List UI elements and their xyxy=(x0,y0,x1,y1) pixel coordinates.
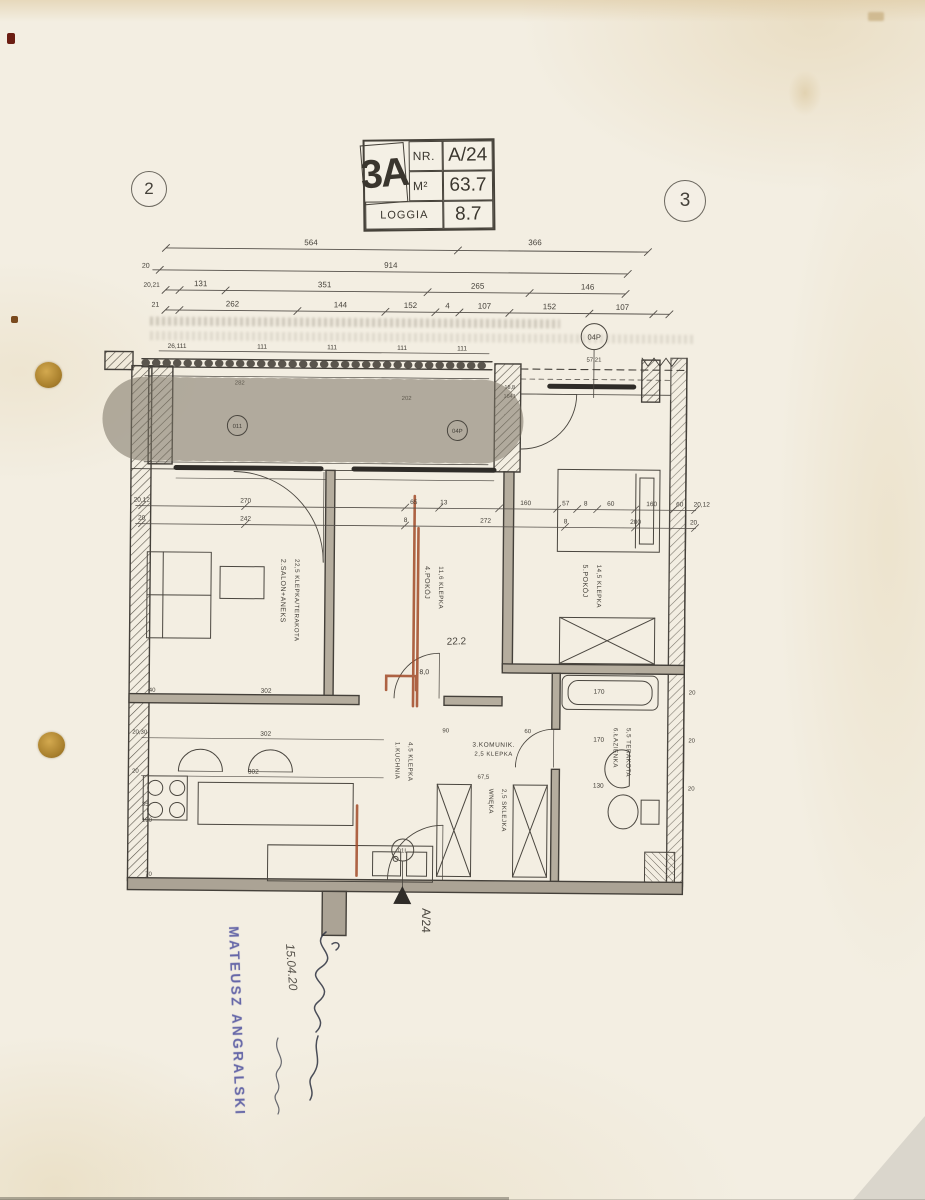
dim-label: 265 xyxy=(471,282,485,291)
axis-bubble-2: 2 xyxy=(131,171,167,207)
signature-strokes xyxy=(275,1038,281,1114)
plan-linework: 564 366 20 914 20,21 131 351 265 146 21 … xyxy=(100,234,713,938)
room-label-salon: 2.SALON+ANEKS xyxy=(279,559,287,623)
handwritten-signature: 15.04.20 xyxy=(248,918,368,1128)
dim-label: 20 xyxy=(690,519,698,526)
punch-hole xyxy=(38,732,65,758)
dim-label: 8 xyxy=(404,517,408,524)
paper-speck xyxy=(11,316,18,323)
dim-label: 170 xyxy=(593,737,604,744)
dim-label: 107 xyxy=(478,302,492,311)
dim-label: 190 xyxy=(142,818,153,824)
doors xyxy=(230,392,576,882)
dim-label: 67,5 xyxy=(477,775,489,781)
dim-label: 20,12 xyxy=(134,497,151,504)
dim-label: 272 xyxy=(480,518,491,525)
dim-label: 262 xyxy=(226,299,240,308)
room-label-pokoj5-area: 14,5 KLEPKA xyxy=(595,565,602,609)
area-value: 63.7 xyxy=(443,170,493,201)
dim-label: 107 xyxy=(616,303,630,312)
marker-door-2: 04P xyxy=(452,429,463,435)
dim-label: 13 xyxy=(440,499,448,506)
dim-label: 130 xyxy=(593,783,604,790)
loggia-value: 8.7 xyxy=(443,200,493,229)
room-label-pokoj5: 5.POKÓJ xyxy=(581,565,590,598)
axis-bubble-3: 3 xyxy=(664,180,706,222)
dim-label: 60 xyxy=(676,501,684,508)
dim-label: 4 xyxy=(445,301,450,310)
dim-label: 20,21 xyxy=(143,282,160,289)
dim-label: 35 xyxy=(142,802,149,808)
room-label-kuchnia: 1.KUCHNIA xyxy=(393,742,400,780)
nr-value: A/24 xyxy=(443,140,493,171)
dim-label: 57 xyxy=(562,500,570,507)
marker-04p: 04P xyxy=(587,333,600,342)
walls xyxy=(100,351,689,938)
dim-label: 90 xyxy=(442,728,449,734)
red-pencil-marks xyxy=(356,496,418,877)
unit-number: 3A xyxy=(360,142,409,205)
hand-dim-note: 8,0 xyxy=(419,669,429,676)
dim-label: 21 xyxy=(152,302,160,309)
dim-label: 152 xyxy=(404,301,418,310)
nr-label: NR. xyxy=(409,141,443,171)
dim-label: 40 xyxy=(149,688,156,694)
scanned-paper: 3A NR. A/24 M² 63.7 LOGGIA 8.7 2 3 xyxy=(0,0,925,1200)
dim-label: 270 xyxy=(240,498,251,505)
dim-label: 26,111 xyxy=(168,343,187,350)
page-corner-fold xyxy=(853,1116,925,1200)
dim-label: 20,30 xyxy=(132,730,148,736)
dim-label: 20 xyxy=(688,738,695,744)
dim-label: 152 xyxy=(543,302,557,311)
dim-label: 131 xyxy=(194,279,208,288)
paper-speck xyxy=(868,12,884,21)
signature-strokes xyxy=(310,932,339,1100)
dim-label: 170 xyxy=(594,689,605,696)
dim-label: 8 xyxy=(564,518,568,525)
title-block: 3A NR. A/24 M² 63.7 LOGGIA 8.7 xyxy=(363,138,496,231)
dim-label: 302 xyxy=(260,731,271,738)
dim-label: 20 xyxy=(132,769,139,775)
paper-speck xyxy=(7,33,15,44)
dim-label: 144 xyxy=(334,300,348,309)
dimension-labels-top: 564 366 20 914 20,21 131 351 265 146 21 … xyxy=(142,235,631,313)
room-label-pokoj4-area: 11,6 KLEPKA xyxy=(437,566,444,609)
dim-label: 302 xyxy=(261,688,272,695)
dim-label: 60 xyxy=(524,729,531,735)
dim-label: 70 xyxy=(145,872,152,878)
dim-label: 111 xyxy=(397,345,407,352)
dim-label: 242 xyxy=(240,516,251,523)
handwritten-date: 15.04.20 xyxy=(283,943,300,991)
paper-stain xyxy=(788,70,822,116)
marker-entrance-door: 01L xyxy=(398,848,409,854)
dim-label: 160 xyxy=(646,501,657,508)
room-label-komunik-area: 2,5 KLEPKA xyxy=(474,752,512,758)
dim-label: 20 xyxy=(142,263,150,270)
dim-label: 20 xyxy=(138,515,146,522)
area-label: M² xyxy=(409,171,443,201)
room-label-pokoj4: 4.POKÓJ xyxy=(423,566,432,599)
dim-label: 200 xyxy=(630,519,641,526)
loggia-label: LOGGIA xyxy=(365,201,443,230)
entrance-unit-label: A/24 xyxy=(419,908,433,933)
marker-04p-dim: 57,21 xyxy=(586,358,602,364)
room-label-kuchnia-area: 4,5 KLEPKA xyxy=(406,742,413,782)
dim-label: 366 xyxy=(528,238,542,247)
floor-plan-drawing: 564 366 20 914 20,21 131 351 265 146 21 … xyxy=(95,228,720,963)
pencil-note: 22.2 xyxy=(447,636,467,648)
dim-label: 20,12 xyxy=(694,502,711,509)
dim-label: 351 xyxy=(318,280,332,289)
dim-label: 914 xyxy=(384,261,398,270)
dim-label: 302 xyxy=(248,769,259,776)
room-label-salon-area: 22,5 KLEPKA/TERAKOTA xyxy=(293,559,301,642)
room-label-wneka: WNĘKA xyxy=(487,789,494,815)
dim-label: 146 xyxy=(581,283,595,292)
dim-label: 111 xyxy=(457,345,467,352)
dim-label: 160 xyxy=(520,500,531,507)
dim-label: 8 xyxy=(584,501,588,508)
marker-door-1: 011 xyxy=(233,424,243,430)
dim-label: 60 xyxy=(607,501,615,508)
dim-label: 564 xyxy=(304,238,318,247)
room-label-wneka-area: 2,5 SKLEJKA xyxy=(500,789,507,832)
room-label-lazienka-area: 5,5 TERAKOTA xyxy=(624,728,631,778)
dim-label: 20 xyxy=(688,786,695,792)
room-label-lazienka: 6.ŁAZIENKA xyxy=(611,728,618,769)
dim-label: 65 xyxy=(410,499,418,506)
room-label-komunik: 3.KOMUNIK. xyxy=(472,742,515,749)
dim-label: 111 xyxy=(257,344,267,351)
punch-hole xyxy=(35,362,62,388)
dim-label: 20 xyxy=(689,690,696,696)
dim-label: 111 xyxy=(327,344,337,351)
